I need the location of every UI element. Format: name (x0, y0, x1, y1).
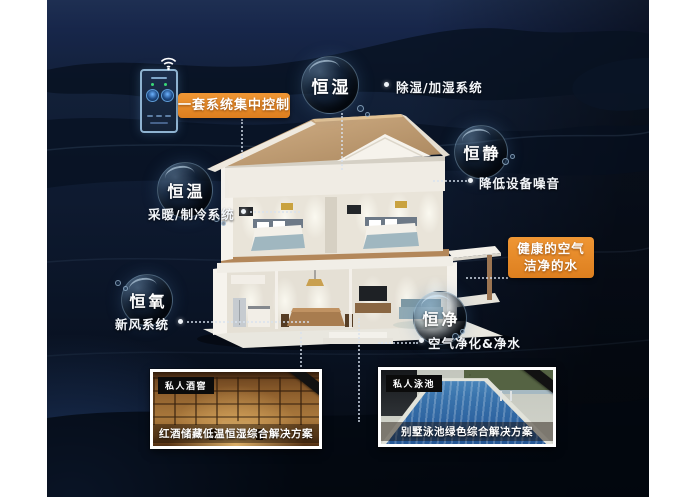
bubble-purity-label: 恒净 (422, 306, 460, 330)
mini-bubble (357, 105, 364, 112)
note-oxygen: 新风系统 (115, 314, 169, 333)
note-humidity: 除湿/加湿系统 (396, 77, 483, 96)
connector-line (241, 119, 243, 159)
panel-title-bar (151, 77, 167, 79)
mini-bubble (502, 158, 509, 165)
bubble-humidity-label: 恒湿 (312, 73, 352, 98)
pool-ladder (500, 391, 512, 401)
healthy-air-water-label: 健康的空气 洁净的水 (508, 237, 594, 278)
status-led (164, 83, 167, 86)
note-quiet: 降低设备噪音 (479, 173, 560, 192)
mini-bubble (365, 112, 370, 117)
healthy-line-2: 洁净的水 (508, 257, 594, 274)
photo-tag: 私人酒窖 (158, 377, 214, 394)
panel-label-bar (165, 115, 171, 117)
connector-line (433, 180, 467, 182)
central-control-label: 一套系统集中控制 (178, 93, 290, 118)
panel-label-bar (147, 115, 153, 117)
connector-dot (419, 338, 424, 343)
bubble-temperature-label: 恒温 (167, 178, 205, 202)
bubble-oxygen-label: 恒氧 (129, 288, 167, 312)
smart-control-panel (140, 69, 178, 133)
status-led (151, 83, 154, 86)
connector-dot (468, 178, 473, 183)
wine-cellar-photo: 私人酒窖 红酒储藏低温恒湿综合解决方案 (150, 369, 322, 449)
connector-line (187, 321, 309, 323)
photo-caption: 红酒储藏低温恒湿综合解决方案 (153, 424, 319, 443)
connector-line (358, 318, 360, 422)
pool-photo: 私人泳池 别墅泳池绿色综合解决方案 (378, 367, 556, 447)
photo-tag: 私人泳池 (386, 375, 442, 392)
connector-line (250, 211, 300, 213)
bubble-quiet-label: 恒静 (463, 140, 501, 164)
panel-label-bar (156, 115, 162, 117)
note-temperature: 采暖/制冷系统 (148, 204, 235, 223)
mini-bubble (510, 154, 515, 159)
connector-dot (384, 82, 389, 87)
poster-stage: 一套系统集中控制 健康的空气 洁净的水 恒湿 恒静 恒温 恒氧 恒净 除湿/加湿… (47, 0, 649, 497)
knob-icon (146, 89, 159, 102)
connector-line (466, 277, 508, 279)
note-purity: 空气净化&净水 (428, 333, 521, 352)
connector-line (300, 332, 302, 367)
knob-icon (161, 89, 174, 102)
connector-dot (241, 209, 246, 214)
mini-bubble (115, 280, 121, 286)
connector-line (341, 113, 343, 170)
panel-label-bar (150, 122, 168, 124)
connector-line (378, 342, 418, 344)
photo-caption: 别墅泳池绿色综合解决方案 (381, 422, 553, 441)
connector-dot (178, 319, 183, 324)
bubble-humidity: 恒湿 (301, 56, 359, 114)
mini-bubble (123, 286, 128, 291)
healthy-line-1: 健康的空气 (508, 240, 594, 257)
wifi-icon (159, 55, 178, 71)
bubble-quiet: 恒静 (454, 125, 508, 179)
poster: 一套系统集中控制 健康的空气 洁净的水 恒湿 恒静 恒温 恒氧 恒净 除湿/加湿… (0, 0, 700, 497)
